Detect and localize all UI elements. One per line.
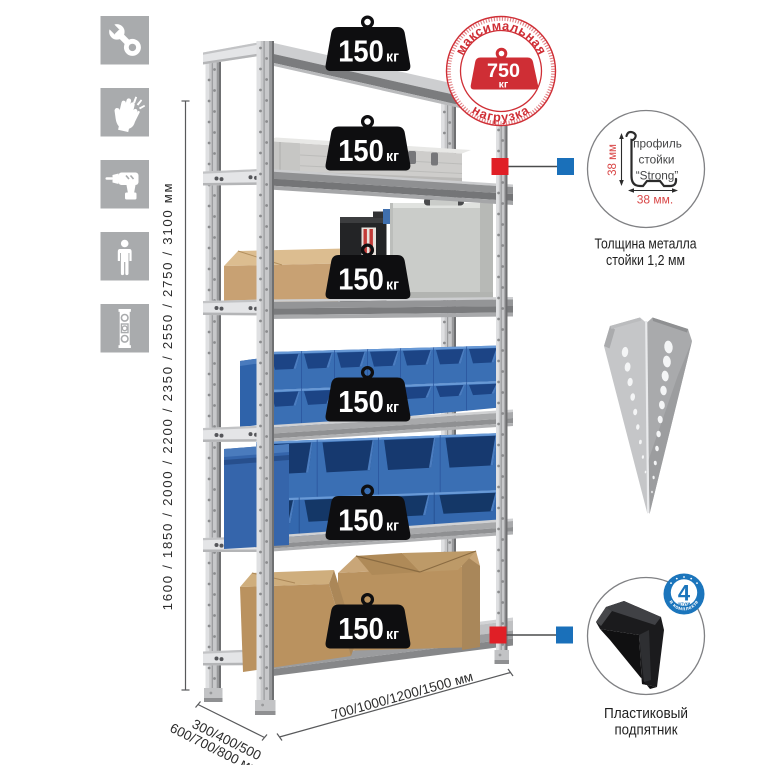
svg-text:150: 150: [338, 263, 384, 297]
svg-text:кг: кг: [499, 79, 509, 91]
svg-text:кг: кг: [386, 518, 399, 535]
svg-text:38 мм.: 38 мм.: [637, 193, 674, 207]
svg-text:150: 150: [338, 385, 384, 419]
svg-text:“Strong”: “Strong”: [636, 169, 679, 183]
svg-text:700/1000/1200/1500 мм: 700/1000/1200/1500 мм: [330, 669, 475, 723]
svg-text:профиль: профиль: [633, 137, 682, 151]
svg-text:кг: кг: [386, 277, 399, 294]
svg-text:Толщина металла: Толщина металла: [595, 236, 698, 253]
svg-text:кг: кг: [386, 49, 399, 66]
svg-text:Пластиковый: Пластиковый: [604, 705, 688, 722]
svg-text:кг: кг: [386, 626, 399, 643]
svg-text:кг: кг: [386, 148, 399, 165]
svg-text:1600 / 1850 / 2000 / 2200 / 23: 1600 / 1850 / 2000 / 2200 / 2350 / 2550 …: [160, 182, 175, 611]
svg-text:подпятник: подпятник: [615, 722, 678, 739]
svg-text:38 мм: 38 мм: [607, 144, 619, 176]
svg-text:150: 150: [338, 134, 384, 168]
svg-text:150: 150: [338, 35, 384, 69]
svg-text:стойки 1,2 мм: стойки 1,2 мм: [606, 252, 685, 269]
svg-text:штуки: штуки: [678, 601, 691, 606]
svg-text:150: 150: [338, 504, 384, 538]
svg-text:стойки: стойки: [638, 153, 674, 167]
svg-text:кг: кг: [386, 399, 399, 416]
svg-text:150: 150: [338, 612, 384, 646]
